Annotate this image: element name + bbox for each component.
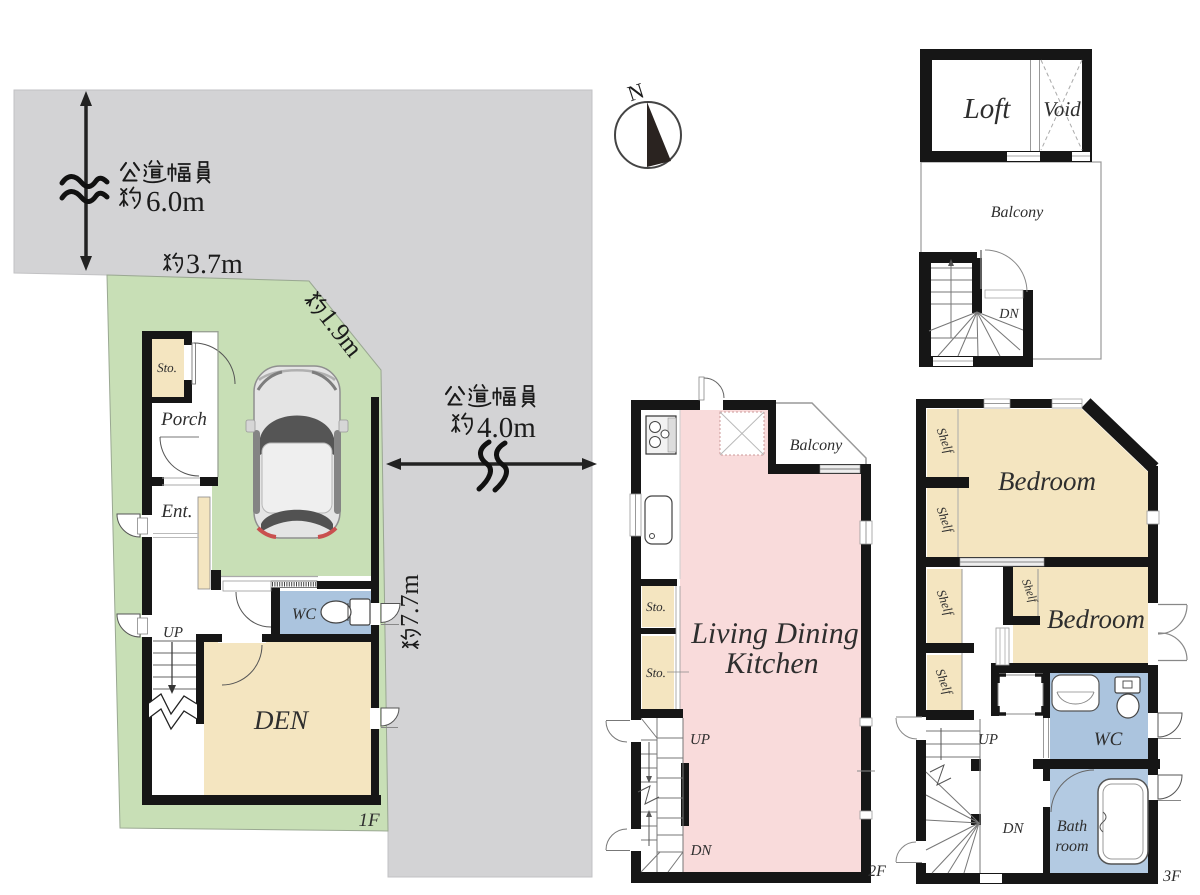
svg-text:Bath: Bath (1057, 818, 1087, 835)
svg-text:Living Dining: Living Dining (690, 617, 859, 650)
svg-text:Kitchen: Kitchen (724, 647, 818, 680)
svg-text:Balcony: Balcony (991, 204, 1044, 221)
svg-text:DEN: DEN (253, 705, 310, 735)
svg-text:Porch: Porch (160, 409, 207, 430)
svg-text:WC: WC (1094, 729, 1123, 750)
svg-text:UP: UP (690, 732, 710, 748)
svg-text:UP: UP (978, 732, 998, 748)
svg-text:3.7m: 3.7m (186, 249, 243, 280)
svg-text:WC: WC (292, 606, 316, 623)
svg-text:Sto.: Sto. (157, 360, 177, 375)
svg-text:6.0m: 6.0m (146, 186, 205, 218)
svg-text:Bedroom: Bedroom (1047, 604, 1145, 634)
svg-text:room: room (1055, 838, 1088, 855)
svg-text:UP: UP (163, 625, 183, 641)
svg-text:Ent.: Ent. (160, 501, 192, 522)
svg-text:Sto.: Sto. (646, 665, 666, 680)
svg-text:7.7m: 7.7m (395, 574, 424, 627)
svg-text:3F: 3F (1162, 868, 1181, 885)
svg-text:Loft: Loft (963, 93, 1012, 125)
svg-text:Balcony: Balcony (790, 437, 843, 454)
svg-text:Void: Void (1043, 97, 1081, 121)
svg-text:Sto.: Sto. (646, 599, 666, 614)
svg-text:1F: 1F (358, 810, 380, 831)
svg-text:DN: DN (690, 843, 713, 859)
svg-text:Bedroom: Bedroom (998, 466, 1096, 496)
svg-text:DN: DN (1002, 821, 1025, 837)
svg-text:4.0m: 4.0m (477, 412, 536, 444)
svg-text:DN: DN (998, 307, 1019, 322)
svg-text:2F: 2F (868, 863, 886, 880)
